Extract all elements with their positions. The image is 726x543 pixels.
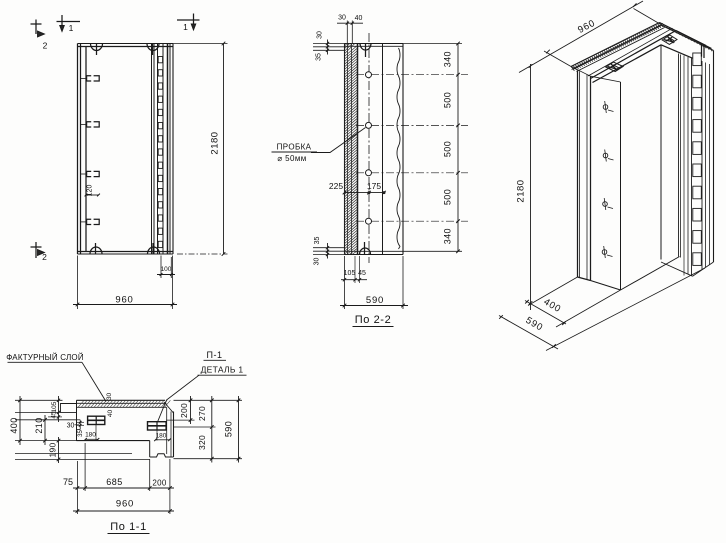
svg-text:500: 500 xyxy=(443,189,453,205)
svg-text:35: 35 xyxy=(316,53,323,61)
svg-text:200: 200 xyxy=(152,479,166,488)
svg-text:2180: 2180 xyxy=(516,179,527,202)
svg-text:590: 590 xyxy=(366,295,384,306)
svg-text:2: 2 xyxy=(42,252,47,262)
svg-text:500: 500 xyxy=(443,92,453,108)
svg-text:ФАКТУРНЫЙ СЛОЙ: ФАКТУРНЫЙ СЛОЙ xyxy=(6,353,84,362)
svg-text:340: 340 xyxy=(443,228,453,244)
svg-text:340: 340 xyxy=(443,51,453,67)
svg-text:По 1-1: По 1-1 xyxy=(110,521,147,533)
svg-text:30: 30 xyxy=(317,31,324,39)
svg-text:225: 225 xyxy=(329,181,343,191)
svg-text:2180: 2180 xyxy=(210,131,221,154)
svg-text:175: 175 xyxy=(367,181,381,191)
svg-text:40: 40 xyxy=(107,410,114,418)
svg-text:П-1: П-1 xyxy=(207,350,223,360)
svg-text:45: 45 xyxy=(51,411,58,419)
svg-text:ПРОБКА: ПРОБКА xyxy=(277,143,312,152)
svg-text:105: 105 xyxy=(344,270,356,277)
svg-text:590: 590 xyxy=(224,421,234,437)
svg-text:По 2-2: По 2-2 xyxy=(355,314,392,326)
svg-text:40: 40 xyxy=(355,15,363,22)
svg-text:1: 1 xyxy=(69,23,74,33)
svg-text:180: 180 xyxy=(156,432,167,439)
svg-text:320: 320 xyxy=(197,435,207,450)
svg-text:2: 2 xyxy=(43,41,48,51)
svg-text:100: 100 xyxy=(161,266,172,273)
svg-text:35: 35 xyxy=(78,430,84,437)
svg-text:105: 105 xyxy=(51,401,58,412)
svg-text:30: 30 xyxy=(106,393,113,401)
svg-text:75: 75 xyxy=(63,477,73,487)
svg-text:685: 685 xyxy=(106,477,123,487)
svg-text:960: 960 xyxy=(115,295,133,306)
svg-text:180: 180 xyxy=(85,432,96,439)
svg-text:270: 270 xyxy=(197,406,207,421)
svg-text:400: 400 xyxy=(9,417,19,433)
svg-text:35: 35 xyxy=(314,237,321,245)
svg-text:200: 200 xyxy=(179,403,189,418)
svg-text:1: 1 xyxy=(183,22,188,32)
svg-text:⌀ 50мм: ⌀ 50мм xyxy=(277,154,306,163)
svg-text:30: 30 xyxy=(67,422,75,429)
svg-text:960: 960 xyxy=(116,499,134,510)
svg-text:190: 190 xyxy=(48,442,58,457)
svg-text:500: 500 xyxy=(443,141,453,157)
svg-text:30: 30 xyxy=(338,15,346,22)
svg-text:210: 210 xyxy=(34,417,44,433)
svg-text:120: 120 xyxy=(86,185,93,197)
svg-text:30: 30 xyxy=(314,258,321,266)
svg-text:ДЕТАЛЬ 1: ДЕТАЛЬ 1 xyxy=(201,365,244,375)
svg-text:45: 45 xyxy=(358,270,366,277)
